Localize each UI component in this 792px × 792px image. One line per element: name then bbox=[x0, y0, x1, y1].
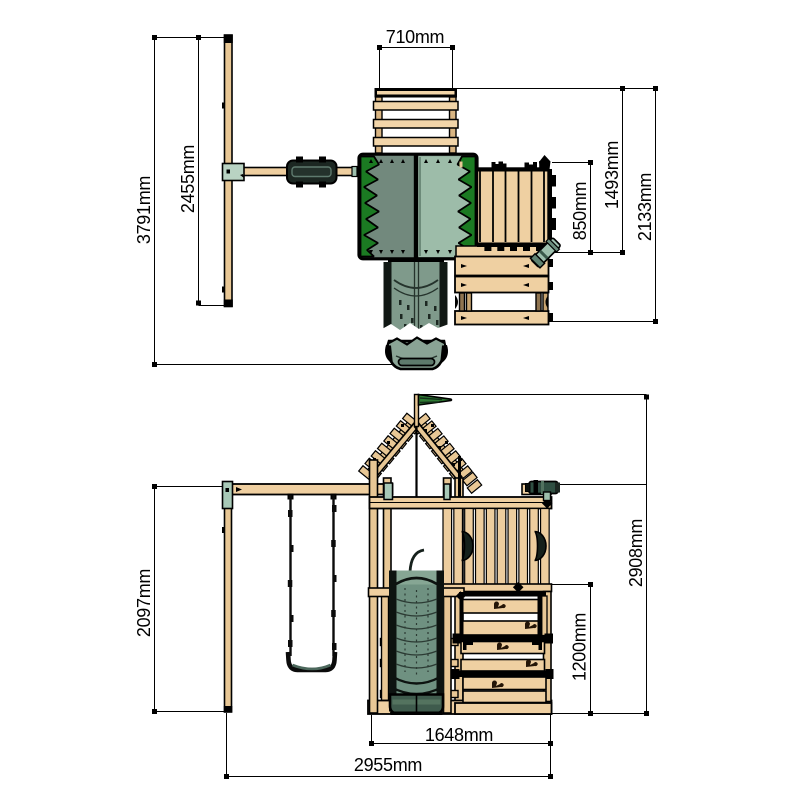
svg-text:1493mm: 1493mm bbox=[602, 141, 622, 209]
svg-text:2955mm: 2955mm bbox=[354, 755, 422, 775]
svg-text:2097mm: 2097mm bbox=[134, 569, 154, 637]
svg-text:1200mm: 1200mm bbox=[570, 613, 590, 681]
svg-text:2908mm: 2908mm bbox=[626, 519, 646, 587]
svg-text:1648mm: 1648mm bbox=[425, 725, 493, 745]
svg-text:850mm: 850mm bbox=[570, 182, 590, 241]
svg-text:2133mm: 2133mm bbox=[635, 173, 655, 241]
svg-text:3791mm: 3791mm bbox=[134, 176, 154, 244]
svg-text:710mm: 710mm bbox=[386, 27, 445, 47]
svg-text:2455mm: 2455mm bbox=[178, 145, 198, 213]
